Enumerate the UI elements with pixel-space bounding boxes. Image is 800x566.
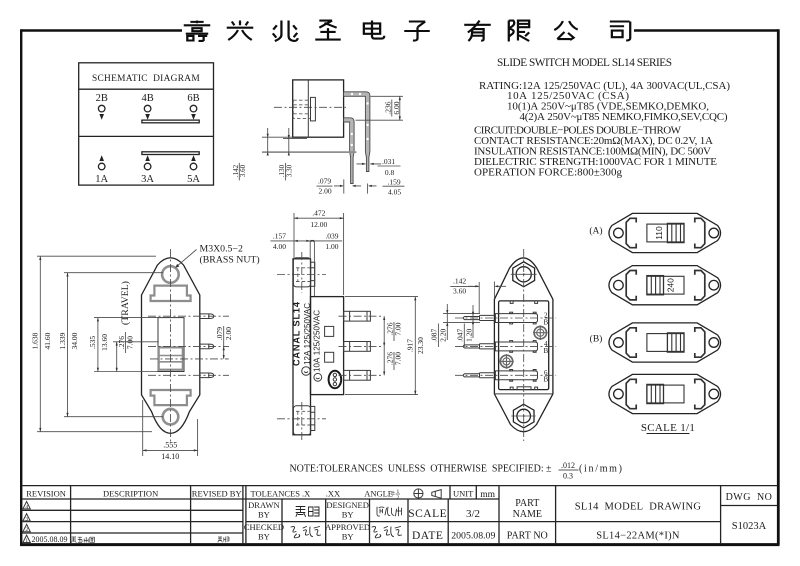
svg-text:41.60: 41.60 — [43, 332, 52, 349]
svg-text:.142: .142 — [453, 277, 466, 286]
svg-text:4.05: 4.05 — [388, 187, 401, 196]
svg-text:UNIT: UNIT — [453, 489, 474, 499]
svg-text:(BRASS NUT): (BRASS NUT) — [200, 255, 260, 266]
svg-text:4.00: 4.00 — [273, 242, 286, 251]
svg-text:SL14 MODEL DRAWING: SL14 MODEL DRAWING — [575, 502, 702, 513]
svg-text:.031: .031 — [382, 157, 395, 166]
svg-text:DESCRIPTION: DESCRIPTION — [103, 488, 158, 498]
svg-text:S1023A: S1023A — [732, 521, 767, 532]
svg-text:APPROVED: APPROVED — [325, 522, 370, 532]
svg-text:7.00: 7.00 — [393, 322, 402, 335]
svg-text:240: 240 — [666, 278, 676, 292]
svg-text:DESIGNED: DESIGNED — [326, 500, 369, 510]
svg-text:1.00: 1.00 — [325, 242, 338, 251]
svg-text:1: 1 — [25, 538, 28, 544]
svg-text:.917: .917 — [406, 339, 415, 352]
svg-text:1.638: 1.638 — [31, 332, 40, 349]
svg-text:6.00: 6.00 — [392, 101, 401, 114]
svg-text:.555: .555 — [163, 440, 177, 449]
svg-text:NOTE:TOLERANCES UNLESS OTHER: NOTE:TOLERANCES UNLESS OTHERWISE SPECIFI… — [290, 464, 553, 475]
svg-text:SCHEMATIC DIAGRAM: SCHEMATIC DIAGRAM — [92, 74, 200, 84]
svg-text:12A 125/250VAC: 12A 125/250VAC — [303, 303, 312, 365]
svg-text:1A: 1A — [95, 174, 108, 185]
svg-text:SCALE 1/1: SCALE 1/1 — [641, 422, 695, 434]
svg-text:PART: PART — [515, 498, 539, 509]
svg-text:6B: 6B — [187, 93, 199, 104]
svg-text:.XX: .XX — [326, 489, 340, 499]
svg-text:.535: .535 — [88, 336, 97, 349]
svg-text:.012: .012 — [561, 461, 575, 470]
svg-text:(A): (A) — [589, 226, 602, 237]
svg-text:B: B — [543, 347, 548, 355]
svg-text:SCALE: SCALE — [408, 508, 447, 520]
svg-text:BY: BY — [342, 510, 354, 520]
svg-text:2.00: 2.00 — [318, 187, 331, 196]
svg-text:.157: .157 — [273, 231, 286, 240]
svg-text:±: ± — [391, 488, 395, 497]
svg-text:2.20: 2.20 — [438, 328, 447, 341]
svg-text:mm: mm — [480, 490, 495, 500]
svg-text:0.8: 0.8 — [385, 168, 395, 177]
svg-text:3.30: 3.30 — [285, 164, 293, 177]
svg-text:B: B — [543, 318, 548, 326]
svg-text:14.10: 14.10 — [161, 452, 179, 461]
svg-text:2: 2 — [397, 495, 400, 501]
svg-text:7.00: 7.00 — [393, 352, 402, 365]
svg-text:2: 2 — [25, 527, 28, 533]
svg-text:.039: .039 — [325, 231, 338, 240]
svg-text:3/2: 3/2 — [466, 508, 480, 520]
svg-text:PART NO: PART NO — [507, 530, 548, 541]
svg-text:4(2)A 250V~μT85 NEMKO,FIMKO,SE: 4(2)A 250V~μT85 NEMKO,FIMKO,SEV,CQC) — [520, 111, 728, 123]
svg-text:B: B — [543, 376, 548, 384]
svg-text:.472: .472 — [312, 209, 325, 218]
svg-text:5A: 5A — [187, 174, 200, 185]
svg-text:OPERATION FORCE:800±300g: OPERATION FORCE:800±300g — [474, 167, 623, 179]
svg-text:2B: 2B — [96, 93, 108, 104]
svg-text:1.20: 1.20 — [464, 328, 473, 341]
svg-text:12.00: 12.00 — [310, 220, 327, 229]
svg-text:BY: BY — [258, 532, 270, 542]
svg-text:CANAL SL14: CANAL SL14 — [291, 301, 301, 366]
svg-text:CHECKED: CHECKED — [244, 522, 284, 532]
svg-text:2.00: 2.00 — [224, 327, 233, 340]
svg-text:(B): (B) — [590, 334, 603, 345]
svg-text:2005.08.09: 2005.08.09 — [32, 535, 68, 544]
svg-text:REVISION: REVISION — [26, 488, 66, 498]
svg-text:SLIDE SWITCH MODEL SL14 SERIES: SLIDE SWITCH MODEL SL14 SERIES — [497, 57, 672, 69]
svg-text:.079: .079 — [318, 177, 331, 186]
svg-text:4: 4 — [25, 504, 28, 510]
svg-text:1.339: 1.339 — [58, 332, 67, 349]
svg-text:0.3: 0.3 — [563, 472, 573, 481]
svg-text:3: 3 — [25, 516, 28, 522]
svg-text:3.60: 3.60 — [239, 164, 247, 177]
svg-text:(in/mm): (in/mm) — [579, 464, 622, 475]
svg-text:(TRAVEL): (TRAVEL) — [120, 281, 131, 325]
svg-text:.159: .159 — [387, 177, 400, 186]
svg-text:23.30: 23.30 — [416, 337, 425, 354]
svg-text:2005.08.09: 2005.08.09 — [451, 531, 495, 542]
svg-text:DATE: DATE — [412, 530, 443, 542]
svg-text:110: 110 — [654, 226, 664, 240]
svg-text:TOLEANCES .X: TOLEANCES .X — [251, 489, 311, 499]
svg-text:BY: BY — [258, 510, 270, 520]
svg-text:NAME: NAME — [513, 509, 542, 520]
svg-text:10A 125/250VAC: 10A 125/250VAC — [313, 310, 322, 372]
svg-text:DRAWN: DRAWN — [248, 500, 279, 510]
svg-text:SL14−22AM(*I)N: SL14−22AM(*I)N — [596, 530, 680, 541]
svg-text:3.60: 3.60 — [453, 286, 466, 295]
svg-text:M3X0.5−2: M3X0.5−2 — [200, 244, 243, 255]
svg-text:34.00: 34.00 — [70, 332, 79, 349]
svg-text:.087: .087 — [429, 328, 438, 341]
svg-text:DWG NO: DWG NO — [726, 492, 773, 503]
svg-text:7.00: 7.00 — [125, 336, 134, 349]
svg-text:13.60: 13.60 — [100, 334, 109, 351]
svg-text:3A: 3A — [141, 174, 154, 185]
svg-text:.079: .079 — [215, 327, 224, 340]
svg-text:.047: .047 — [455, 328, 464, 341]
svg-text:4B: 4B — [141, 93, 153, 104]
svg-text:REVISED BY: REVISED BY — [192, 488, 242, 498]
svg-text:BY: BY — [342, 532, 354, 542]
svg-text:ANGLE: ANGLE — [364, 489, 393, 499]
